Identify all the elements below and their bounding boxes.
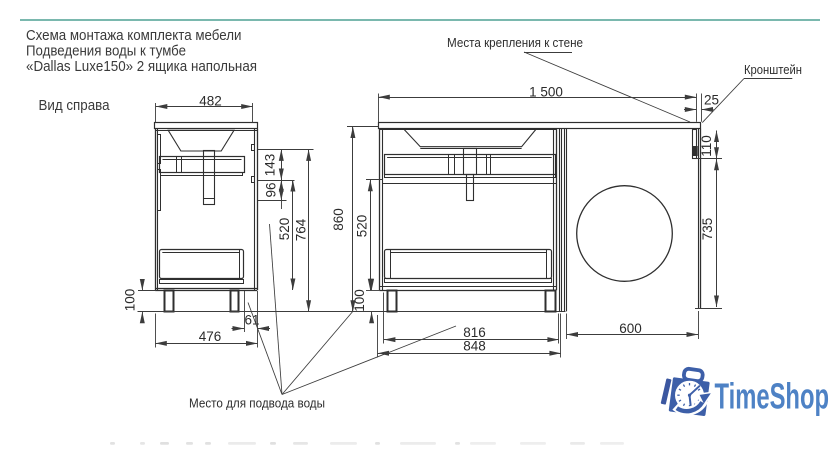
svg-text:848: 848 [463,339,486,354]
svg-text:482: 482 [199,93,222,108]
svg-text:100: 100 [123,289,138,312]
svg-text:96: 96 [264,182,279,197]
svg-text:Схема монтажа комплекта мебели: Схема монтажа комплекта мебели [26,27,242,44]
svg-text:520: 520 [277,218,292,241]
svg-text:Подведения воды к тумбе: Подведения воды к тумбе [26,43,186,60]
svg-text:143: 143 [263,154,278,177]
svg-text:Кронштейн: Кронштейн [744,62,802,77]
svg-text:Вид справа: Вид справа [39,97,111,114]
svg-text:61: 61 [244,313,259,328]
svg-text:Места крепления к стене: Места крепления к стене [447,35,583,50]
svg-text:476: 476 [199,329,222,344]
svg-text:520: 520 [355,215,370,238]
svg-text:110: 110 [699,135,714,157]
svg-text:764: 764 [294,218,309,241]
svg-text:860: 860 [331,208,346,231]
svg-text:Место для подвода воды: Место для подвода воды [189,396,325,411]
svg-text:1 500: 1 500 [529,84,563,99]
svg-text:735: 735 [700,218,715,241]
svg-text:600: 600 [619,321,642,336]
svg-text:25: 25 [704,93,719,108]
svg-text:TimeShop: TimeShop [715,376,830,417]
svg-text:100: 100 [352,289,367,312]
svg-text:«Dallas Luxe150» 2 ящика напол: «Dallas Luxe150» 2 ящика напольная [26,58,257,75]
